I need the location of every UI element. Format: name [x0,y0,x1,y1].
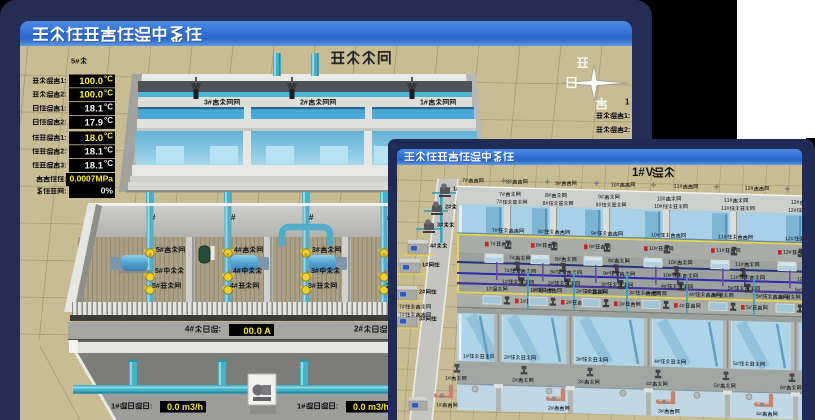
svg-text:1: 1 [625,98,630,107]
svg-text:#: # [507,355,510,361]
svg-text:#: # [749,305,752,311]
svg-text:#: # [159,268,163,275]
svg-text:#: # [160,247,164,254]
svg-text:#: # [680,184,683,190]
svg-text:#: # [692,292,695,298]
svg-text:2: 2 [800,277,802,283]
svg-text:#: # [539,243,542,249]
svg-text:#: # [724,234,727,240]
svg-text::: : [64,135,66,142]
svg-text:°C: °C [104,75,113,84]
svg-text:#: # [316,247,320,254]
svg-text:#: # [505,279,508,285]
svg-text:#: # [798,287,801,293]
svg-text:#: # [638,167,645,179]
svg-text:#: # [782,294,785,300]
svg-text::: : [628,127,630,134]
svg-text:#: # [315,268,319,275]
svg-text:#: # [495,228,498,234]
svg-text:#: # [606,271,609,277]
svg-text:#: # [759,294,762,300]
svg-text:#: # [425,263,428,269]
svg-text::: : [64,78,66,85]
svg-text:#: # [433,244,436,250]
svg-text:#: # [359,325,364,334]
svg-text:#: # [604,282,607,288]
svg-text:#: # [238,247,242,254]
svg-text:#: # [422,290,425,296]
svg-text:#: # [789,250,792,256]
svg-text:#: # [448,376,451,382]
svg-text:100.0: 100.0 [79,90,103,101]
svg-text:17.9: 17.9 [85,117,104,128]
svg-text:#: # [548,193,551,199]
svg-text:0.0007MPa: 0.0007MPa [70,174,114,184]
svg-text:#: # [588,289,591,295]
svg-text::: : [64,119,66,126]
svg-text:#: # [541,229,544,235]
svg-text:#: # [502,192,505,198]
svg-text:18.1: 18.1 [85,161,104,172]
svg-text:#: # [791,236,794,242]
svg-text:#: # [657,359,660,365]
svg-text:#: # [237,268,241,275]
svg-text:#: # [783,385,786,391]
svg-text:°C: °C [104,159,113,168]
svg-text:#: # [579,289,582,295]
svg-text:#: # [558,257,561,263]
svg-text:#: # [156,283,160,290]
svg-text:#: # [730,198,733,204]
svg-text:#: # [664,284,667,290]
svg-text:#: # [551,406,554,412]
svg-text:#: # [402,304,405,310]
svg-text::: : [64,149,66,156]
svg-text::: : [64,92,66,99]
svg-text:#: # [190,325,195,334]
svg-text:#: # [553,270,556,276]
svg-text:#: # [592,244,595,250]
svg-text:#: # [663,196,666,202]
svg-text:#: # [466,354,469,360]
svg-text:#: # [440,223,443,229]
svg-text:0.0 m3/h: 0.0 m3/h [353,402,389,412]
svg-text:#: # [717,383,720,389]
svg-text:#: # [422,317,425,323]
svg-text:#: # [465,178,468,184]
svg-text:#: # [751,186,754,192]
svg-text:#: # [489,286,492,292]
svg-text:#: # [601,195,604,201]
svg-text:00.0 A: 00.0 A [243,326,271,337]
svg-text::: : [336,401,339,410]
svg-text:#: # [234,283,238,290]
svg-text:#: # [741,262,744,268]
svg-text:#: # [648,291,651,297]
svg-text:#: # [797,200,800,206]
svg-text:18.1: 18.1 [85,147,104,158]
svg-text:#: # [509,179,512,185]
svg-text:#: # [661,409,664,415]
svg-text:#: # [312,283,316,290]
svg-text:#: # [617,182,620,188]
svg-text::: : [64,188,66,195]
svg-text:#: # [660,204,663,210]
svg-text:#: # [208,99,212,106]
svg-text:#: # [682,303,685,309]
svg-text:#: # [402,312,405,318]
svg-text:°C: °C [104,102,113,111]
svg-text:#: # [545,201,548,207]
svg-text::: : [64,162,66,169]
svg-text::: : [64,106,66,113]
svg-text:#: # [304,99,308,106]
svg-text:#: # [558,181,561,187]
svg-text:#: # [515,378,518,384]
svg-text:#: # [581,379,584,385]
svg-text:#: # [674,260,677,266]
svg-text:#: # [649,381,652,387]
svg-text:#: # [551,281,554,287]
svg-text:#: # [448,205,451,211]
svg-text:0.0 m3/h: 0.0 m3/h [167,402,203,412]
svg-text:#: # [727,206,730,212]
svg-text:#: # [731,286,734,292]
svg-text:°C: °C [104,145,113,154]
svg-text:°C: °C [104,88,113,97]
svg-text:#: # [594,231,597,237]
svg-text:°C: °C [104,116,113,125]
svg-text:#: # [657,232,660,238]
svg-text:#: # [759,411,762,417]
svg-text:18.1: 18.1 [85,104,104,115]
svg-text:18.0: 18.0 [85,133,104,144]
svg-text::: : [628,113,630,120]
svg-text:#: # [736,275,739,281]
svg-text:V: V [646,167,654,179]
svg-text:#: # [655,246,658,252]
svg-text:#: # [794,208,797,214]
svg-text:#: # [722,248,725,254]
svg-text:#: # [439,402,442,408]
svg-text:#: # [569,300,572,306]
svg-text:#: # [512,255,515,261]
svg-text:#: # [611,258,614,264]
svg-text:#: # [736,361,739,367]
svg-text:#: # [632,290,635,296]
svg-text:#: # [535,288,538,294]
svg-text:#: # [507,268,510,274]
svg-text:100.0: 100.0 [79,76,103,87]
svg-text:#: # [424,99,428,106]
svg-text:#: # [493,241,496,247]
svg-text:#: # [715,293,718,299]
svg-text:#: # [669,273,672,279]
svg-text::: : [150,401,153,410]
svg-text::: : [218,325,221,334]
svg-text:#: # [523,299,526,305]
svg-text:#: # [579,357,582,363]
svg-text:0%: 0% [101,186,114,196]
svg-text:°C: °C [104,132,113,141]
svg-text:#: # [499,200,502,206]
svg-text:#: # [622,302,625,308]
svg-text:#: # [598,203,601,209]
